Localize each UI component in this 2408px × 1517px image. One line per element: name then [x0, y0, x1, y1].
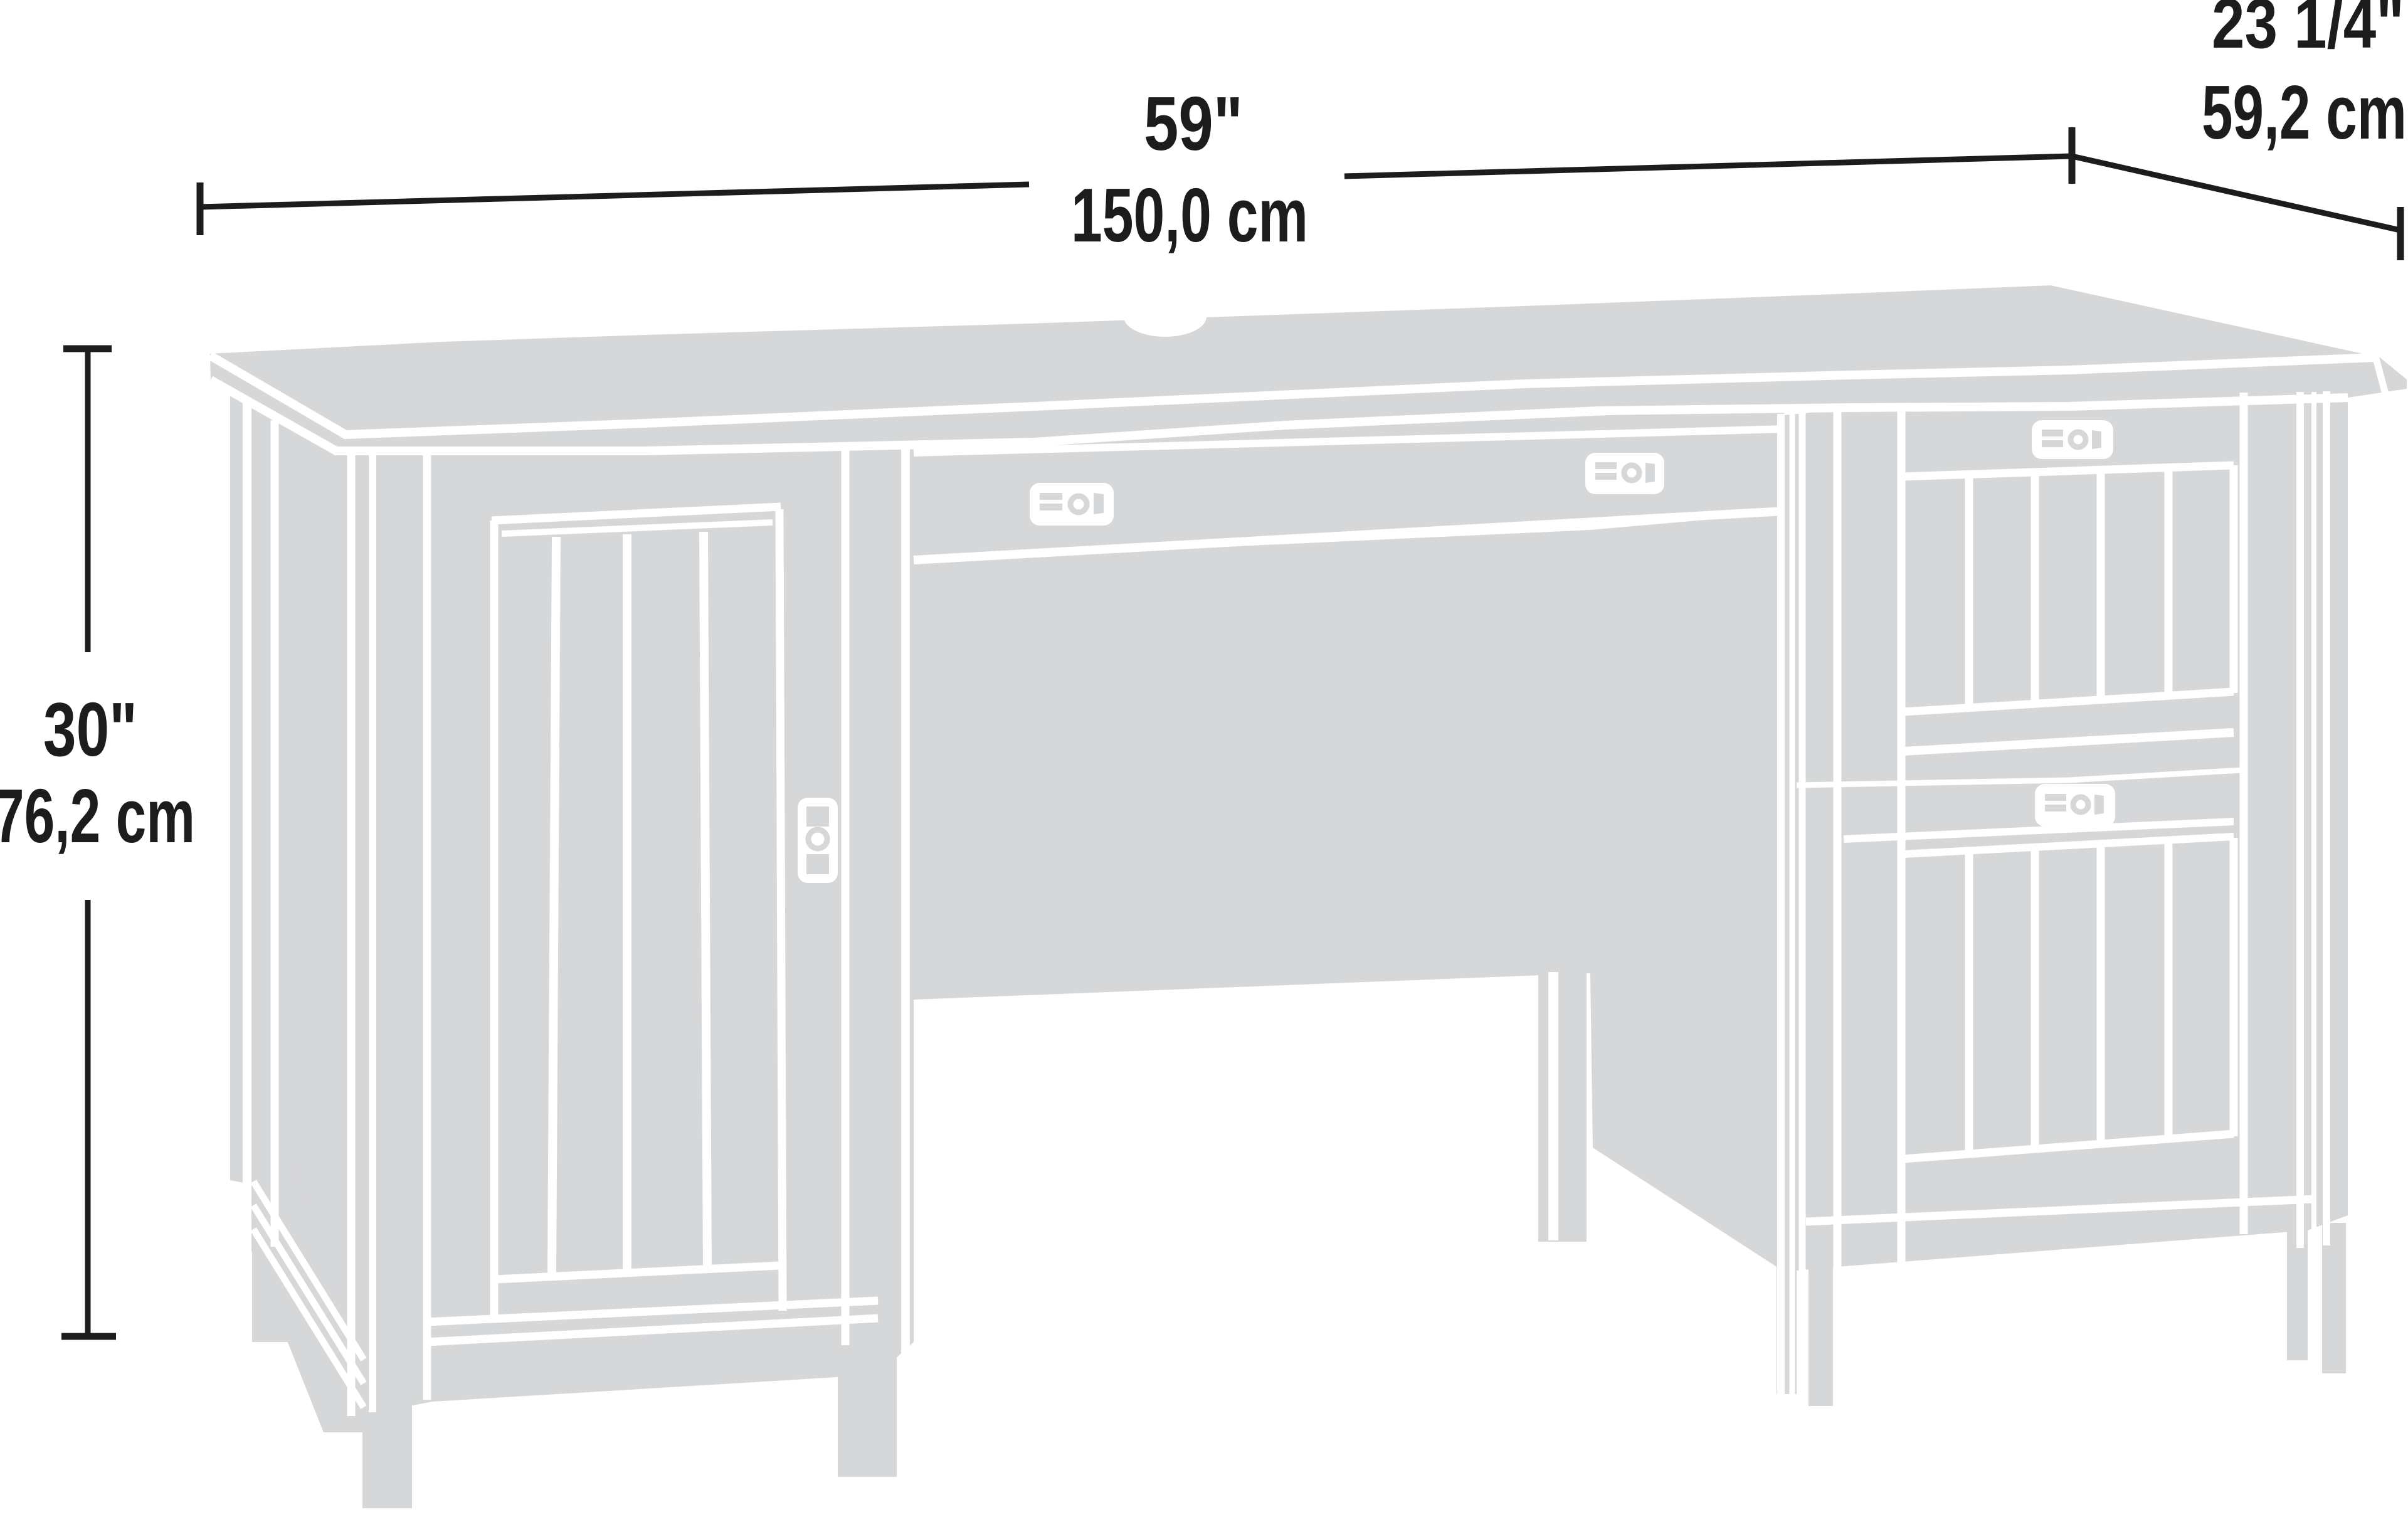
svg-text:23 1/4": 23 1/4"	[2212, 0, 2404, 63]
svg-text:59": 59"	[1144, 81, 1243, 166]
svg-text:59,2 cm: 59,2 cm	[2202, 70, 2407, 155]
svg-text:30": 30"	[43, 687, 137, 772]
svg-text:150,0 cm: 150,0 cm	[1071, 172, 1308, 258]
svg-text:76,2 cm: 76,2 cm	[0, 773, 195, 859]
